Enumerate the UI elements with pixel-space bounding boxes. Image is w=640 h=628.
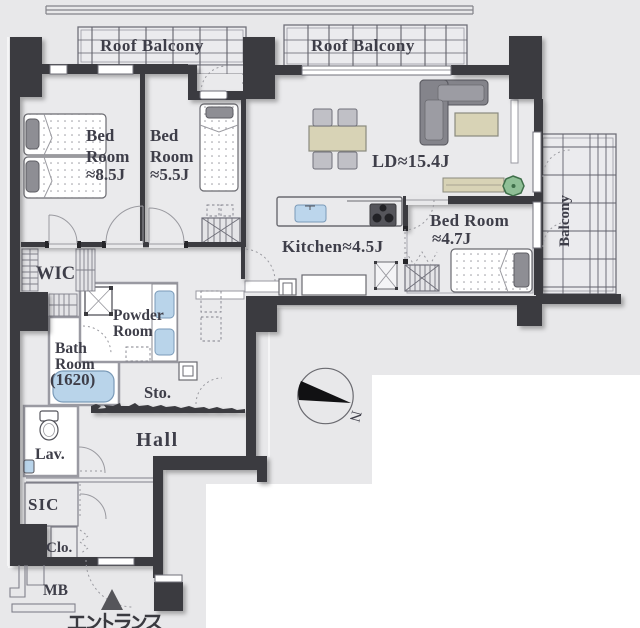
svg-text:Clo.: Clo. — [46, 540, 73, 556]
svg-text:Room: Room — [113, 323, 153, 340]
svg-text:≈8.5J: ≈8.5J — [86, 165, 126, 184]
svg-text:Balcony: Balcony — [557, 195, 573, 247]
svg-text:Bed: Bed — [86, 126, 115, 145]
svg-text:Room: Room — [150, 147, 193, 166]
svg-text:Hall: Hall — [136, 429, 179, 451]
svg-text:MB: MB — [43, 582, 68, 599]
svg-text:LD≈15.4J: LD≈15.4J — [372, 151, 450, 171]
svg-text:WIC: WIC — [36, 264, 75, 284]
svg-text:Roof Balcony: Roof Balcony — [100, 36, 204, 55]
svg-text:Lav.: Lav. — [35, 446, 65, 463]
svg-text:(1620): (1620) — [50, 370, 95, 389]
svg-text:≈4.7J: ≈4.7J — [432, 229, 472, 248]
svg-text:Bath: Bath — [55, 340, 87, 357]
svg-text:Sto.: Sto. — [144, 383, 171, 402]
svg-text:Bed Room: Bed Room — [430, 211, 509, 230]
svg-text:≈5.5J: ≈5.5J — [150, 165, 190, 184]
svg-text:Roof Balcony: Roof Balcony — [311, 36, 415, 55]
svg-text:Bed: Bed — [150, 126, 179, 145]
svg-text:Room: Room — [86, 147, 129, 166]
svg-text:SIC: SIC — [28, 495, 59, 514]
svg-text:Kitchen≈4.5J: Kitchen≈4.5J — [282, 237, 384, 256]
svg-text:Powder: Powder — [113, 307, 164, 324]
